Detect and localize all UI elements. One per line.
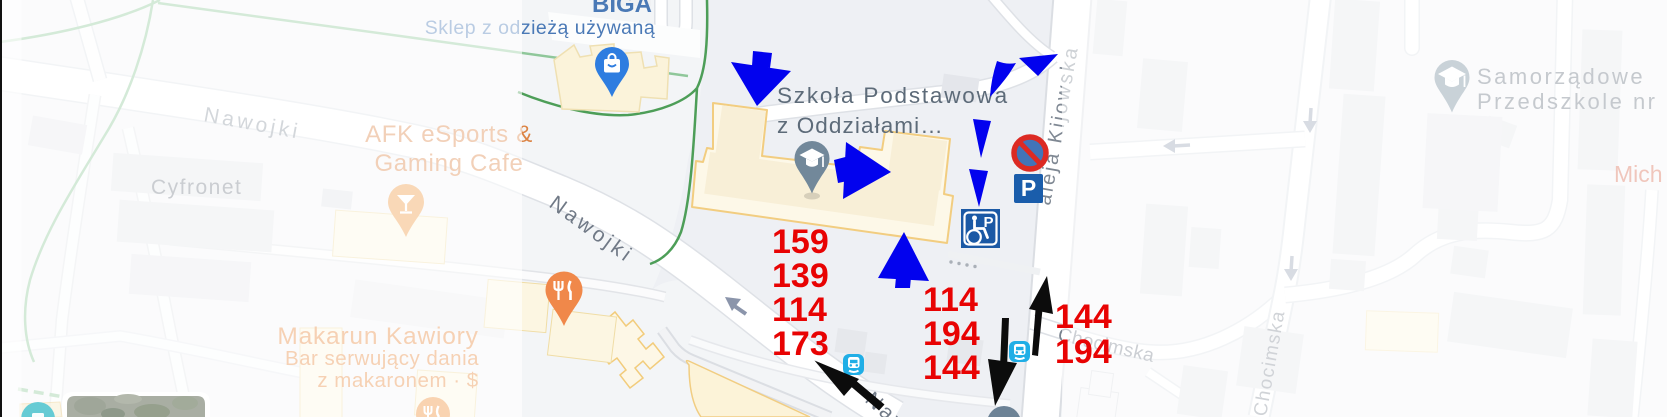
svg-text:Szkoła Podstawowa: Szkoła Podstawowa [777, 83, 1009, 108]
svg-text:194: 194 [1055, 333, 1112, 371]
svg-text:BIGA: BIGA [592, 0, 652, 18]
svg-text:144: 144 [923, 349, 980, 387]
svg-text:z Oddziałami…: z Oddziałami… [777, 113, 944, 138]
svg-text:144: 144 [1055, 298, 1112, 336]
svg-text:P: P [1021, 175, 1036, 201]
svg-text:159: 159 [772, 223, 829, 261]
svg-text:114: 114 [772, 291, 827, 329]
svg-text:173: 173 [772, 325, 829, 363]
svg-text:114: 114 [923, 281, 978, 319]
svg-text:139: 139 [772, 257, 829, 295]
svg-text:194: 194 [923, 315, 980, 353]
